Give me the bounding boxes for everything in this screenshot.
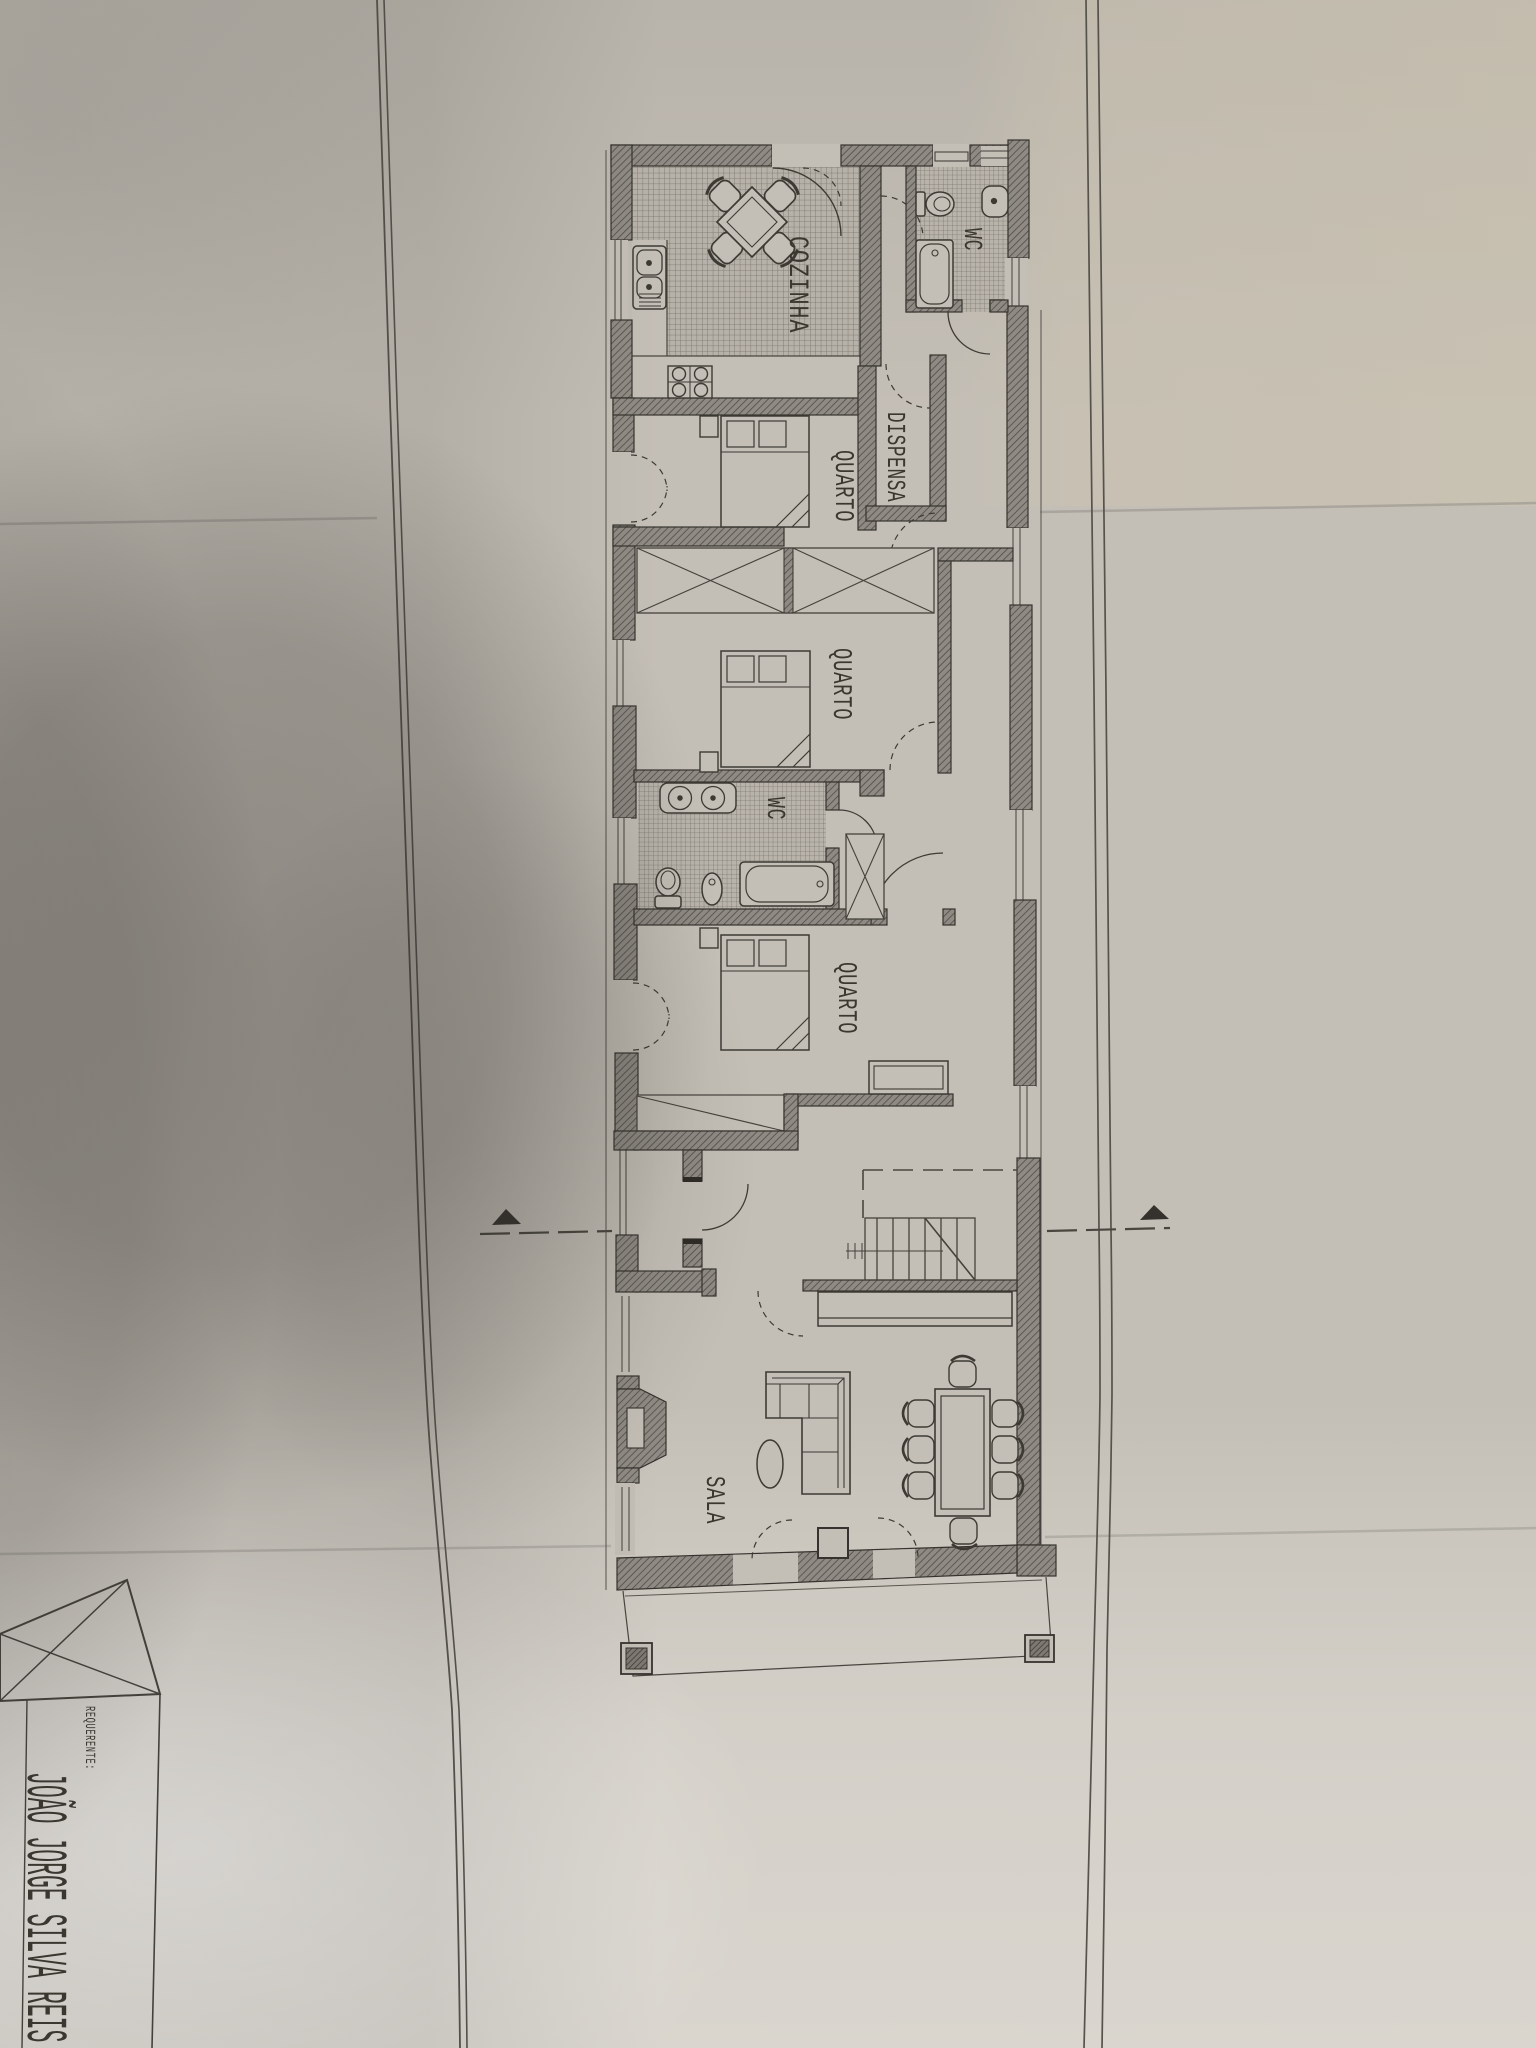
svg-text:QUARTO: QUARTO	[825, 648, 855, 720]
svg-text:QUARTO: QUARTO	[830, 962, 860, 1034]
svg-text:WC: WC	[957, 228, 987, 251]
svg-text:QUARTO: QUARTO	[827, 450, 857, 522]
svg-text:DISPENSA: DISPENSA	[880, 412, 910, 502]
svg-text:SALA: SALA	[698, 1476, 728, 1524]
svg-text:WC: WC	[760, 797, 790, 820]
svg-text:COZINHA: COZINHA	[781, 236, 812, 333]
